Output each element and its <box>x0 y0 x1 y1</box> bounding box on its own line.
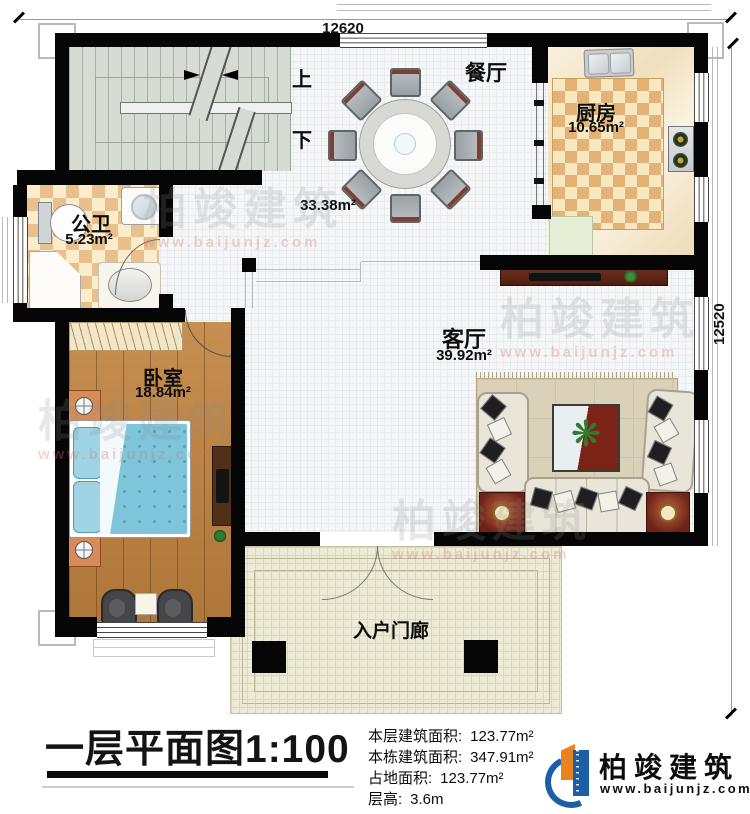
wall <box>159 185 173 237</box>
stat-row: 本栋建筑面积:347.91m² <box>368 747 534 768</box>
dining-chair <box>390 194 421 223</box>
table-center <box>394 133 416 155</box>
wall <box>694 122 708 177</box>
stat-row: 本层建筑面积:123.77m² <box>368 726 534 747</box>
kitchen-window <box>694 177 709 222</box>
side-table <box>479 492 525 533</box>
wall <box>694 47 708 73</box>
dining-area: 33.38m² <box>296 197 360 214</box>
burner <box>673 153 688 168</box>
stove-icon <box>668 126 694 172</box>
living-area: 39.92m² <box>428 347 500 364</box>
column-line <box>245 272 246 308</box>
table-lamp-icon <box>493 504 511 522</box>
porch-label: 入户门廊 <box>336 616 446 643</box>
kitchen-window <box>694 73 709 122</box>
stat-label: 本栋建筑面积: <box>368 749 462 766</box>
dining-chair <box>390 68 421 97</box>
tv-icon <box>529 271 601 281</box>
living-window <box>694 420 709 493</box>
chair-seat <box>165 599 181 617</box>
nightstand <box>67 390 101 423</box>
porch-column <box>252 641 286 673</box>
sink-basin <box>588 53 610 75</box>
table-lamp-icon <box>659 504 677 522</box>
pillow <box>73 481 102 533</box>
wall <box>13 185 27 217</box>
kitchen-sink-icon <box>584 48 635 78</box>
stair-down-label: 下 <box>292 124 312 153</box>
burner <box>673 132 688 147</box>
dimension-tick <box>13 11 25 23</box>
door-track-stop <box>534 140 544 146</box>
column-line <box>252 272 253 308</box>
right-dimension-label: 12520 <box>711 296 728 352</box>
living-window <box>694 297 709 370</box>
stat-row: 占地面积:123.77m² <box>368 768 534 789</box>
mini-table <box>135 593 157 615</box>
title-rule-thin <box>42 786 354 788</box>
fridge-icon <box>549 216 593 258</box>
stat-label: 占地面积: <box>368 770 432 787</box>
plan-title: 一层平面图1:100 <box>45 718 350 774</box>
bedroom-window <box>97 622 207 638</box>
wall <box>480 255 708 270</box>
wall <box>532 205 551 219</box>
washer-drum <box>131 194 157 220</box>
brand-name: 柏竣建筑 <box>599 746 739 786</box>
stat-value: 123.77m² <box>470 728 533 745</box>
dining-chair <box>328 130 357 161</box>
plant-icon <box>214 530 226 542</box>
beam-line <box>256 269 361 270</box>
logo-building-blue-icon <box>573 750 589 796</box>
side-table <box>646 492 690 533</box>
beam-line <box>361 261 481 262</box>
cushion <box>597 490 619 512</box>
title-rule <box>47 771 328 778</box>
dining-table <box>359 99 451 189</box>
wall-post <box>231 308 245 322</box>
wall <box>231 322 245 637</box>
kitchen-area: 10.65m² <box>560 119 632 136</box>
wall <box>532 47 548 83</box>
bathroom-area: 5.23m² <box>58 231 120 248</box>
sink-basin <box>610 52 632 74</box>
dimension-tick <box>725 11 737 23</box>
wall <box>159 294 173 322</box>
bed <box>69 420 191 538</box>
rug-fringe <box>476 372 676 378</box>
stair-arrow-icon <box>222 70 238 80</box>
wall <box>694 222 708 297</box>
washing-machine-icon <box>121 187 163 225</box>
wall <box>245 532 320 546</box>
door-track-stop <box>534 178 544 184</box>
lounge-chair <box>101 589 137 625</box>
brand-url: www.baijunjz.com <box>600 781 750 796</box>
wall <box>694 370 708 420</box>
stat-value: 347.91m² <box>470 749 533 766</box>
top-dimension-label: 12620 <box>303 20 383 37</box>
stats-block: 本层建筑面积:123.77m² 本栋建筑面积:347.91m² 占地面积:123… <box>368 726 534 810</box>
window-sill <box>93 639 215 657</box>
stat-value: 3.6m <box>410 791 443 808</box>
plant-icon <box>623 271 638 282</box>
lamp-icon <box>75 397 93 415</box>
dimension-tick <box>727 37 739 49</box>
wall-post <box>242 258 256 272</box>
right-dimension-line <box>731 44 732 716</box>
bedroom-area: 18.84m² <box>126 384 200 401</box>
chair-seat <box>109 599 125 617</box>
dining-label: 餐厅 <box>453 57 519 87</box>
wall <box>17 170 262 185</box>
eave-line <box>337 10 711 11</box>
lounge-chair <box>157 589 193 625</box>
stair-up-label: 上 <box>292 63 312 92</box>
lamp-icon <box>75 541 93 559</box>
floor-plan-canvas: 12620 12520 上 下 公卫 5.23m² <box>0 0 750 814</box>
stair-arrow-icon <box>184 70 200 80</box>
door-track-stop <box>534 100 544 106</box>
dining-chair <box>454 130 483 161</box>
nightstand <box>67 534 101 567</box>
plant-icon: ❋ <box>566 414 606 454</box>
bathroom-window <box>13 217 28 303</box>
wall <box>434 532 708 546</box>
wall <box>55 322 69 622</box>
beam-line <box>256 281 361 282</box>
tv-cabinet <box>500 268 668 286</box>
pillow <box>73 427 102 479</box>
monitor-icon <box>216 469 229 503</box>
sill-line <box>7 217 8 303</box>
stat-label: 本层建筑面积: <box>368 728 462 745</box>
brand-logo: 柏竣建筑 www.baijunjz.com <box>545 742 740 804</box>
eave-line <box>337 4 711 5</box>
wardrobe <box>69 322 183 351</box>
beam-line <box>360 262 361 282</box>
stat-row: 层高:3.6m <box>368 789 534 810</box>
stat-label: 层高: <box>368 791 402 808</box>
coffee-table: ❋ <box>552 404 620 472</box>
wall <box>55 47 69 170</box>
porch-column <box>464 640 498 673</box>
stat-value: 123.77m² <box>440 770 503 787</box>
wall <box>55 617 97 637</box>
sill-line <box>2 217 3 303</box>
